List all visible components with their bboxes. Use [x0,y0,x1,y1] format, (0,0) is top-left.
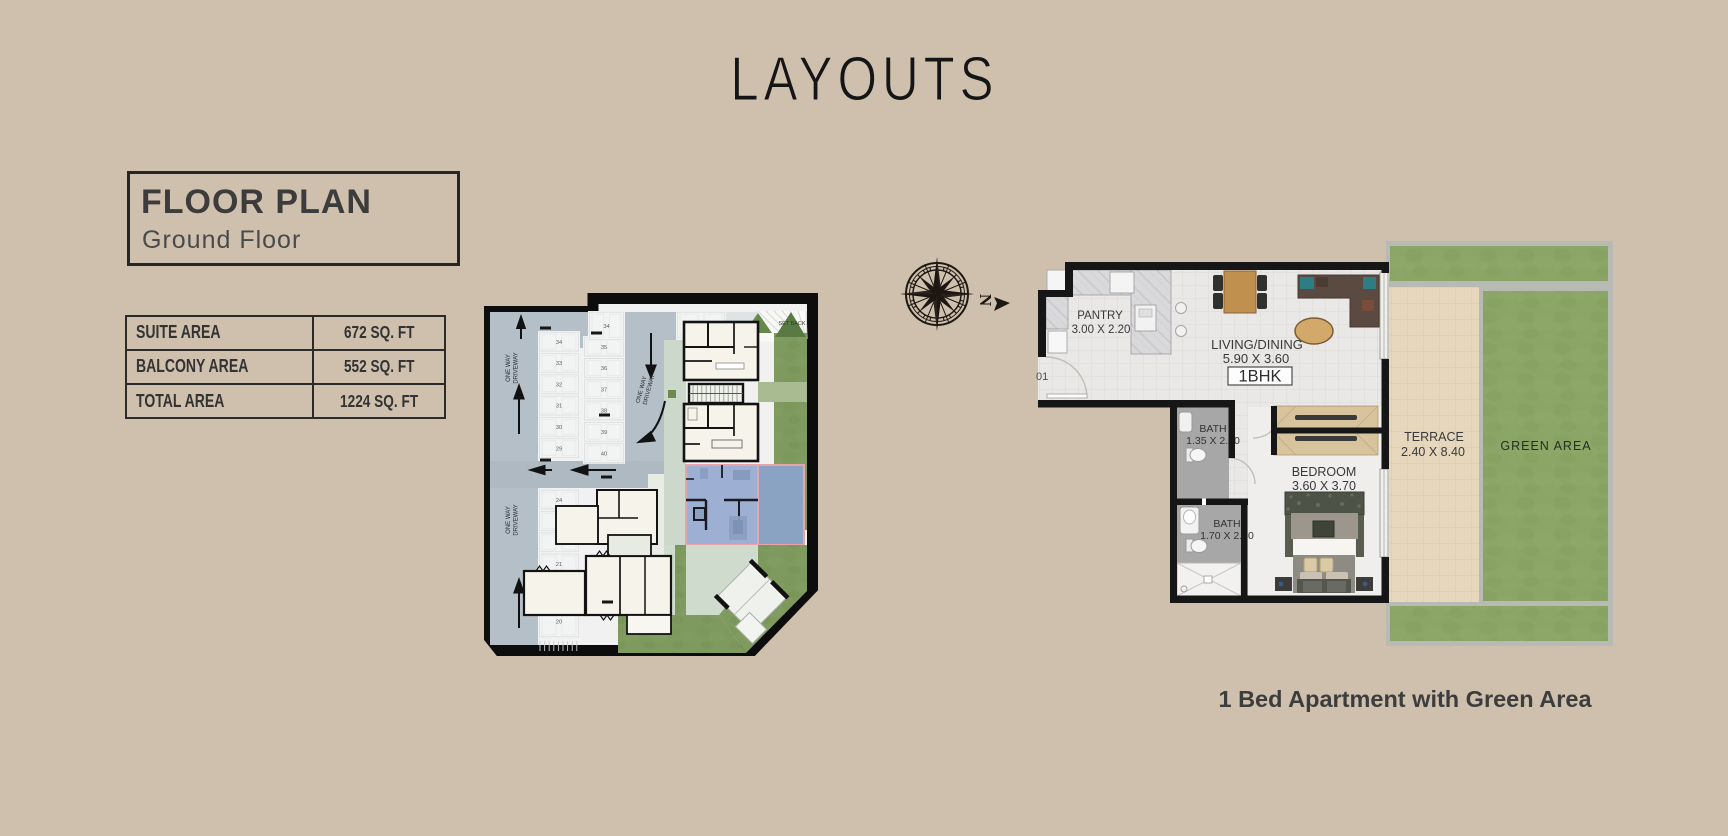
svg-text:5.90 X 3.60: 5.90 X 3.60 [1223,351,1290,366]
svg-text:01: 01 [1036,371,1048,383]
svg-text:40: 40 [601,451,607,457]
svg-text:TERRACE: TERRACE [1404,430,1464,444]
svg-text:DRIVEWAY: DRIVEWAY [514,352,520,383]
svg-text:39: 39 [601,430,607,436]
svg-text:3.00 X 2.20: 3.00 X 2.20 [1072,324,1131,336]
svg-text:24: 24 [556,498,562,504]
svg-text:2.40 X 8.40: 2.40 X 8.40 [1401,445,1465,459]
svg-text:30: 30 [556,425,562,431]
svg-text:BATH: BATH [1213,518,1240,530]
svg-text:34: 34 [556,340,562,346]
svg-text:DRIVEWAY: DRIVEWAY [514,504,520,535]
svg-text:34: 34 [603,324,609,330]
svg-text:BEDROOM: BEDROOM [1292,465,1357,479]
svg-text:29: 29 [556,446,562,452]
svg-text:37: 37 [601,387,607,393]
svg-text:20: 20 [556,620,562,626]
svg-text:BATH: BATH [1199,423,1226,435]
svg-text:31: 31 [556,404,562,410]
svg-text:3.60 X 3.70: 3.60 X 3.70 [1292,479,1356,493]
svg-text:ONE WAY: ONE WAY [506,354,512,382]
svg-text:GREEN AREA: GREEN AREA [1500,439,1591,453]
svg-text:ONE WAY: ONE WAY [506,506,512,534]
svg-text:21: 21 [556,562,562,568]
svg-text:32: 32 [556,382,562,388]
svg-text:1BHK: 1BHK [1238,368,1281,386]
svg-text:35: 35 [601,345,607,351]
svg-text:PANTRY: PANTRY [1077,310,1123,322]
svg-text:N: N [976,294,995,307]
svg-text:LIVING/DINING: LIVING/DINING [1211,337,1303,352]
svg-text:33: 33 [556,361,562,367]
svg-text:36: 36 [601,366,607,372]
svg-text:SET BACK: SET BACK [778,321,805,327]
